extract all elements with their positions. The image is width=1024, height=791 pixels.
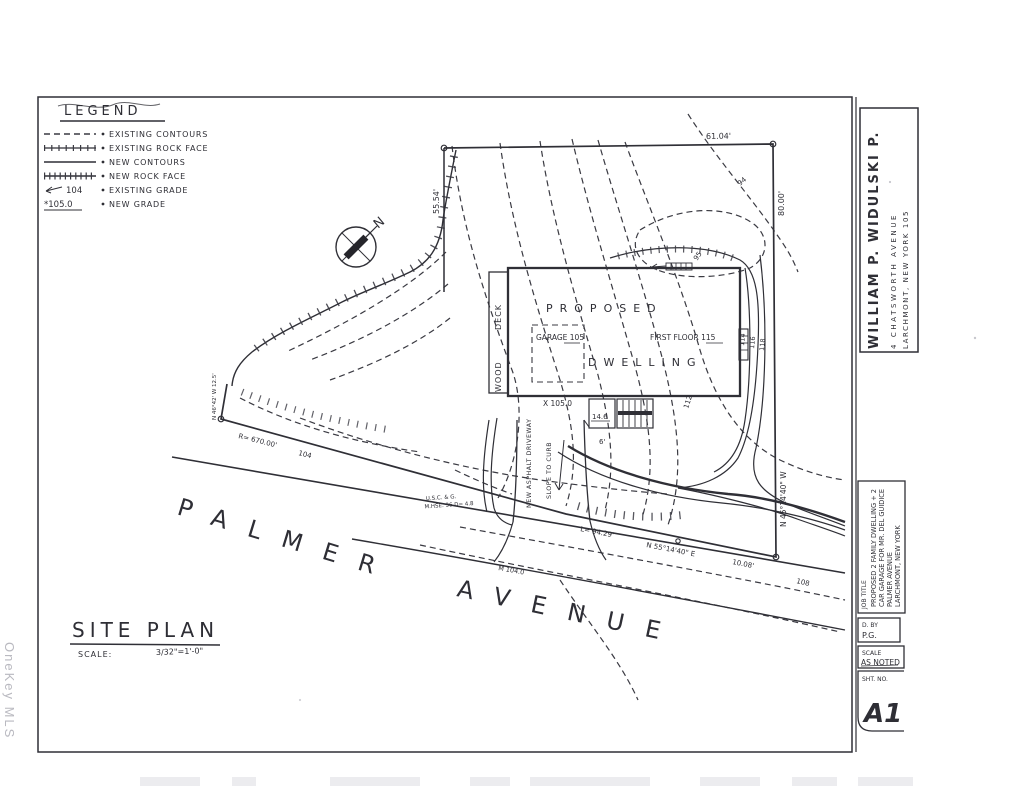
drawing-title: SITE PLAN SCALE: 3/32"=1'-0" — [70, 618, 220, 659]
dwelling-label-line2: DWELLING — [588, 356, 703, 369]
architect-address1: 4 CHATSWORTH AVENUE — [890, 213, 898, 349]
plan-scale-label: SCALE: — [78, 650, 112, 659]
legend: LEGEND EXISTING CONTOURS EXISTING ROCK F… — [44, 103, 208, 210]
drawn-by-value: P.G. — [862, 631, 877, 640]
grade-label-95: 95 — [692, 250, 704, 262]
watermark: OneKey MLS — [2, 642, 17, 739]
legend-item-label: EXISTING GRADE — [109, 186, 188, 195]
uscg-note-line1: U.S.C. & G. — [426, 494, 457, 502]
sheet-number-label: SHT. NO. — [862, 676, 888, 683]
scanned-site-plan-page: LEGEND EXISTING CONTOURS EXISTING ROCK F… — [0, 0, 1024, 791]
dim-left-edge: 55.54' — [432, 189, 441, 214]
site-plan-drawing: LEGEND EXISTING CONTOURS EXISTING ROCK F… — [0, 0, 1024, 791]
sheet-number-value: A1 — [862, 699, 902, 729]
dwelling-outline — [508, 268, 740, 396]
deck-label-word2: WOOD — [494, 361, 503, 392]
legend-sample-new-grade: *105.0 — [44, 200, 73, 210]
contour-grade-labels: 94 95 112 114 116 118 104 108 — [298, 175, 811, 588]
slope-note: SLOPE TO CURB — [546, 442, 553, 499]
job-title-line4: LARCHMONT, NEW YORK — [894, 525, 902, 607]
job-title-line2: CAR GARAGE FOR MR. DEL GUIDICE — [878, 489, 886, 607]
legend-item-label: NEW GRADE — [109, 200, 166, 209]
plan-scale-value: 3/32"=1'-0" — [156, 646, 204, 657]
grade-label-118: 118 — [758, 338, 767, 351]
sheet-number-block: SHT. NO. A1 — [858, 671, 904, 731]
street-name: PALMER AVENUE — [174, 493, 684, 650]
dim-right-edge: 80.00' — [777, 191, 786, 216]
proposed-dwelling: PROPOSED DWELLING GARAGE 105 FIRST FLOOR… — [489, 268, 748, 408]
dim-radius: R= 670.00' — [238, 432, 278, 449]
drawn-by-block: D. BY P.G. — [858, 618, 900, 642]
job-title-label: JOB TITLE — [861, 580, 868, 610]
north-arrow: N — [336, 214, 388, 267]
scale-block: SCALE AS NOTED — [858, 646, 904, 668]
yard-spot-grade: X 105.0 — [543, 399, 572, 408]
plan-title: SITE PLAN — [72, 618, 219, 642]
driveway-note: NEW ASPHALT DRIVEWAY — [526, 419, 533, 508]
drawn-by-label: D. BY — [862, 622, 878, 629]
bearing-right-edge: N 45°14'40" W — [779, 471, 788, 527]
architect-address2: LARCHMONT, NEW YORK 105 — [902, 210, 910, 349]
grade-label-114: 114 — [738, 333, 747, 346]
legend-title: LEGEND — [64, 104, 141, 119]
job-title-block: JOB TITLE PROPOSED 2 FAMILY DWELLING + 2… — [858, 481, 905, 613]
grade-label-116: 116 — [748, 336, 757, 349]
scan-artifacts — [140, 181, 976, 786]
street-word-avenue: AVENUE — [455, 574, 685, 649]
first-floor-label: FIRST FLOOR 115 — [650, 333, 716, 342]
street-word-palmer: PALMER — [174, 493, 400, 586]
legend-item-label: EXISTING CONTOURS — [109, 130, 208, 139]
legend-item-label: NEW CONTOURS — [109, 158, 186, 167]
architect-block: WILLIAM P. WIDULSKI P. 4 CHATSWORTH AVEN… — [860, 108, 918, 352]
steps-dimension: 6' — [599, 438, 605, 446]
entry-steps: 14.6 6' — [589, 399, 653, 446]
stoop-dimension: 14.6 — [592, 413, 608, 421]
legend-item-label: EXISTING ROCK FACE — [109, 144, 208, 153]
grade-label-94: 94 — [736, 175, 748, 187]
dim-tie: 10.08' — [732, 558, 755, 570]
job-title-line3: PALMER AVENUE — [886, 552, 894, 607]
scale-label: SCALE — [862, 650, 881, 657]
boundary-labels: 61.04' 80.00' 55.54' N 45°14'40" W N 55°… — [212, 132, 788, 571]
property-corner — [676, 539, 680, 543]
bearing-left-jog: N 46°42' W 12.5' — [212, 373, 218, 420]
new-contours — [483, 248, 845, 536]
dwelling-label-line1: PROPOSED — [546, 302, 663, 315]
garage-label: GARAGE 105 — [536, 333, 584, 342]
road-upper-edge — [172, 457, 845, 573]
legend-sample-existing-grade: 104 — [66, 186, 82, 196]
grade-label-104: 104 — [298, 449, 313, 460]
driveway: NEW ASPHALT DRIVEWAY SLOPE TO CURB — [494, 419, 606, 562]
legend-item-label: NEW ROCK FACE — [109, 172, 186, 181]
job-title-line1: PROPOSED 2 FAMILY DWELLING + 2 — [870, 489, 878, 607]
grade-label-108: 108 — [796, 577, 811, 588]
architect-name: WILLIAM P. WIDULSKI P. — [867, 131, 882, 349]
dim-top-edge: 61.04' — [706, 132, 731, 141]
deck-label-word1: DECK — [494, 304, 503, 330]
